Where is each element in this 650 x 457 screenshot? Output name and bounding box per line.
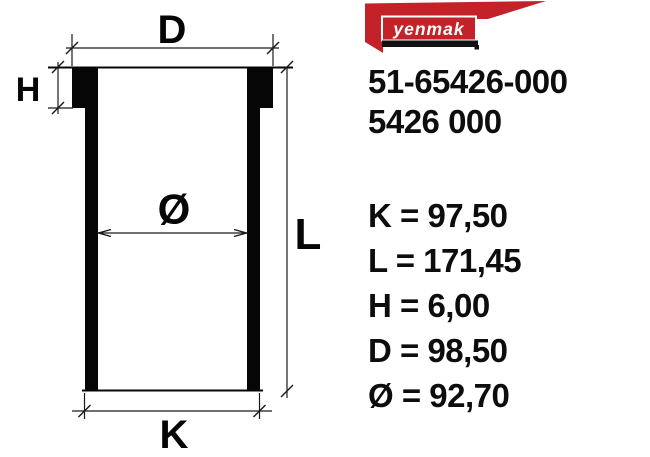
part-number-secondary: 5426 000 (368, 102, 502, 142)
wall-left (85, 108, 98, 391)
logo-bar-notch (475, 45, 480, 50)
brand-logo: yenmak (358, 0, 550, 56)
spec-line-bore: Ø = 92,70 (368, 373, 521, 418)
dim-label-l: L (295, 210, 322, 259)
dimension-bore: Ø (98, 186, 247, 237)
dimension-D: D (66, 8, 279, 66)
spec-line-k: K = 97,50 (368, 193, 521, 238)
wall-right (247, 108, 260, 391)
dim-label-bore: Ø (158, 186, 191, 233)
part-number-primary: 51-65426-000 (368, 62, 568, 102)
dim-label-h: H (16, 71, 41, 109)
dimension-H: H (16, 61, 73, 114)
logo-wordmark: yenmak (392, 19, 464, 39)
catalog-card: D H Ø L (0, 0, 650, 457)
spec-line-h: H = 6,00 (368, 283, 521, 328)
technical-drawing: D H Ø L (0, 0, 345, 457)
dimension-K: K (72, 393, 272, 457)
flange-left (72, 67, 98, 108)
spec-line-d: D = 98,50 (368, 328, 521, 373)
spec-line-l: L = 171,45 (368, 238, 521, 283)
dim-label-d: D (158, 8, 187, 52)
spec-list: K = 97,50 L = 171,45 H = 6,00 D = 98,50 … (368, 193, 521, 418)
dim-label-k: K (160, 413, 189, 457)
flange-right (247, 67, 273, 108)
logo-underline-bar (382, 41, 478, 48)
dimension-L: L (281, 61, 321, 398)
